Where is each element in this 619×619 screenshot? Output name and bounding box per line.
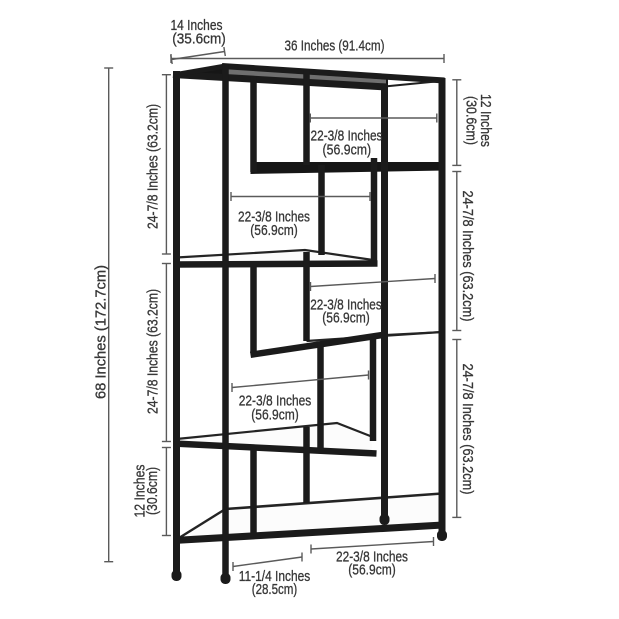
svg-text:(56.9cm): (56.9cm) bbox=[250, 223, 298, 239]
svg-text:(56.9cm): (56.9cm) bbox=[323, 143, 372, 159]
svg-text:68 Inches (172.7cm): 68 Inches (172.7cm) bbox=[94, 265, 110, 399]
svg-text:24-7/8 Inches (63.2cm): 24-7/8 Inches (63.2cm) bbox=[146, 104, 162, 229]
svg-text:36 Inches (91.4cm): 36 Inches (91.4cm) bbox=[285, 39, 385, 55]
svg-text:(28.5cm): (28.5cm) bbox=[252, 582, 298, 598]
svg-text:(30.6cm): (30.6cm) bbox=[145, 467, 161, 515]
svg-text:24-7/8 Inches (63.2cm): 24-7/8 Inches (63.2cm) bbox=[459, 191, 475, 322]
svg-text:(56.9cm): (56.9cm) bbox=[251, 408, 299, 424]
svg-text:24-7/8 Inches (63.2cm): 24-7/8 Inches (63.2cm) bbox=[146, 289, 162, 414]
svg-text:24-7/8 Inches (63.2cm): 24-7/8 Inches (63.2cm) bbox=[459, 364, 475, 495]
svg-text:(35.6cm): (35.6cm) bbox=[172, 32, 226, 48]
svg-text:(56.9cm): (56.9cm) bbox=[348, 563, 396, 579]
svg-text:(30.6cm): (30.6cm) bbox=[463, 96, 479, 145]
svg-text:(56.9cm): (56.9cm) bbox=[322, 311, 370, 327]
